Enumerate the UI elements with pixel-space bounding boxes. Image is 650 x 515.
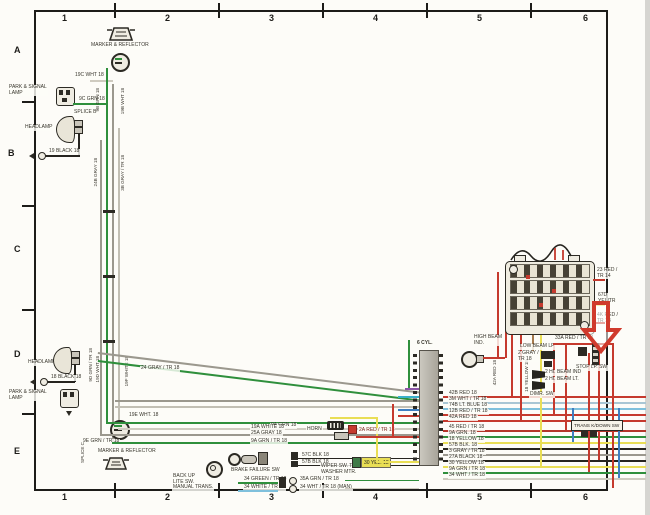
headlamp-connector (71, 351, 80, 358)
grid-col-label: 1 (62, 13, 67, 23)
wire-label-vertical: 9B GRN 18 (95, 88, 100, 112)
grid-col-label: 4 (373, 492, 378, 502)
fuse-block-wiring (505, 242, 595, 262)
wire-segment (115, 406, 419, 408)
wire-label: 35A GRN / TR 18 (299, 477, 340, 483)
fuse-dot (526, 275, 530, 279)
wire-segment (565, 343, 567, 430)
fuse-dot (539, 303, 543, 307)
marker-reflector-label: MARKER & REFLECTOR (90, 43, 150, 49)
ground-arrow-icon (29, 153, 34, 159)
high-beam-ind-label: HIGH BEAM IND. (473, 335, 503, 346)
wire-segment (618, 408, 620, 478)
headlamp (56, 116, 75, 143)
fuse-row (510, 280, 590, 294)
wire-segment (115, 400, 419, 402)
grid-tick (114, 483, 116, 498)
wire-segment (408, 340, 410, 388)
grid-col-label: 1 (62, 492, 67, 502)
wire-label: 19 BLACK 18 (48, 149, 80, 155)
grid-col-label: 2 (165, 13, 170, 23)
connector-block (291, 452, 298, 460)
wire-segment (47, 381, 75, 383)
grid-col-label: 6 (583, 492, 588, 502)
grid-col-label: 6 (583, 13, 588, 23)
dimmer-label: DIMR. SW (529, 392, 555, 398)
wire-segment (345, 480, 419, 481)
wire-segment (483, 357, 505, 359)
wire-label-vertical: 19F WHITE 18 (124, 356, 129, 386)
grid-tick (530, 3, 532, 18)
wire-segment (612, 343, 614, 488)
frame-right (606, 10, 608, 491)
splice-b-label: SPLICE B (73, 110, 98, 116)
grid-row-label: E (14, 446, 20, 456)
wire-label-vertical: 18 YELLOW 18 (524, 360, 529, 392)
backup-switch-label: BACK UP LITE SW. MANUAL TRANS. (172, 474, 214, 491)
grid-tick (322, 3, 324, 18)
wire-label: 18 BLACK 18 (50, 375, 82, 381)
wire-segment (356, 436, 419, 438)
bulkhead-connector-label: 6 CYL. (416, 341, 434, 347)
grid-col-label: 5 (477, 13, 482, 23)
horn-grill (330, 423, 341, 428)
harness-clip (103, 210, 115, 213)
fuse-row (510, 264, 590, 278)
grid-row-label: B (8, 148, 15, 158)
trans-kickdown-labelbox: TRANS K/DOWN SW (571, 420, 623, 431)
ground-arrow-icon (30, 379, 35, 385)
grid-tick (114, 3, 116, 18)
trans-kickdown-label: TRANS K/DOWN SW (574, 423, 619, 428)
lamp-filament (115, 58, 122, 60)
wire-segment (238, 490, 278, 492)
ground-eyelet (40, 378, 48, 386)
lamp-filament (115, 62, 122, 64)
wire-label: 34 WHT / TR 18 (448, 473, 486, 479)
wire-segment (106, 68, 108, 422)
wire-label: 2 HI. BEAM IND (544, 370, 582, 376)
connector-block (352, 457, 361, 468)
connector-pin (63, 392, 67, 397)
grid-col-label: 2 (165, 492, 170, 502)
brake-failure-label: BRAKE FAILURE SW (230, 468, 281, 474)
grid-col-label: 5 (477, 492, 482, 502)
wire-segment (376, 417, 378, 462)
wire-label: 9C GRN 18 (78, 97, 106, 103)
brake-failure-switch (228, 453, 241, 466)
splice-c-label: SPLICE C (80, 442, 85, 463)
connector-block (279, 477, 286, 488)
wire-segment (100, 140, 102, 434)
brake-failure-connector (258, 452, 268, 465)
grid-tick (218, 3, 220, 18)
lamp-filament (114, 425, 122, 427)
wire-label: 19E WHT. 18 (128, 413, 159, 419)
fuse-row (510, 296, 590, 310)
harness-clip (103, 340, 115, 343)
grid-tick (22, 205, 36, 207)
wire-label: 19C WHT 18 (74, 73, 105, 79)
bulkhead-connector (419, 350, 439, 466)
grid-tick (22, 101, 36, 103)
low-beam-connector (544, 361, 552, 367)
connector-eyelet (289, 485, 297, 493)
park-signal-label: PARK & SIGNAL LAMP (8, 85, 48, 96)
wire-segment (45, 155, 80, 157)
wire-label-vertical: 42A RED 18 (492, 360, 497, 385)
wire-segment (98, 352, 426, 394)
headlamp-label: HEADLAMP (24, 125, 54, 131)
wire-segment (330, 417, 377, 419)
connector-pin (66, 90, 70, 95)
fuse-row (510, 312, 590, 326)
wire-label: 25A GRAY 18 (250, 431, 283, 437)
connector-pin (70, 392, 74, 397)
fuse-dot (552, 289, 556, 293)
ground-arrow-icon (66, 411, 72, 416)
wire-label: 23 RED / TR 14 (596, 268, 618, 279)
park-signal-label: PARK & SIGNAL LAMP (8, 390, 48, 401)
marker-reflector-icon (106, 25, 136, 42)
headlamp (53, 347, 72, 374)
connector-pins-left (413, 354, 417, 462)
grid-row-label: D (14, 349, 21, 359)
marker-reflector-icon (103, 456, 129, 471)
wire-segment (593, 279, 605, 281)
wire-label: 42A RED 18 (448, 415, 478, 421)
ground-eyelet (38, 152, 46, 160)
wire-label: 2 GRAY / TR 18 (517, 351, 540, 362)
horn-connector (334, 432, 349, 440)
grid-tick (218, 483, 220, 498)
brake-failure-connector (241, 455, 257, 464)
wire-segment (112, 84, 114, 442)
connector-block (348, 425, 357, 434)
grid-col-label: 3 (269, 492, 274, 502)
grid-row-label: A (14, 45, 21, 55)
annotation-arrow-icon (580, 300, 622, 354)
horn-label: HORN (306, 427, 323, 433)
grid-tick (22, 309, 36, 311)
harness-clip (103, 275, 115, 278)
wire-segment (90, 80, 113, 82)
wire-label-vertical: 19B WHT 18 (120, 88, 125, 114)
wire-label-vertical: 9D GRN / TR 18 (88, 348, 93, 382)
wire-label: 2A RED / TR 18 (358, 428, 395, 434)
wire-segment (345, 488, 419, 489)
connector-eyelet (289, 477, 297, 485)
wire-segment (73, 103, 106, 105)
connector-pin (59, 90, 63, 95)
low-beam-connector (541, 351, 555, 359)
grid-tick (530, 483, 532, 498)
wire-segment (588, 353, 590, 472)
backup-switch-center (210, 465, 216, 471)
fuse-block-screw (509, 265, 518, 274)
headlamp-connector (74, 120, 83, 127)
grid-col-label: 4 (373, 13, 378, 23)
frame-left (34, 10, 36, 491)
marker-reflector-label: MARKER & REFLECTOR (97, 449, 157, 455)
low-beam-label: LOW BEAM LP (519, 344, 555, 350)
diagram-sheet: 1 2 3 4 5 6 1 2 3 4 5 6 A B C D E MARKER… (0, 0, 650, 515)
wire-label: 9A GRN / TR 18 (250, 439, 288, 445)
wire-label: 2 HI. BEAM LT. (544, 377, 580, 383)
grid-tick (426, 483, 428, 498)
trans-kickdown-switch (590, 431, 597, 437)
grid-col-label: 3 (269, 13, 274, 23)
grid-row-label: C (14, 244, 21, 254)
wire-label-vertical: 24B GRAY 18 (93, 158, 98, 186)
grid-tick (22, 413, 36, 415)
connector-block (291, 461, 298, 467)
wire-label-vertical: 3B GRAY / TR 18 (120, 155, 125, 191)
grid-tick (426, 3, 428, 18)
wire-label: 24 GRAY / TR 18 (140, 366, 180, 372)
wire-segment (392, 404, 394, 436)
trans-kickdown-switch (581, 431, 588, 437)
connector-pin (62, 98, 67, 102)
